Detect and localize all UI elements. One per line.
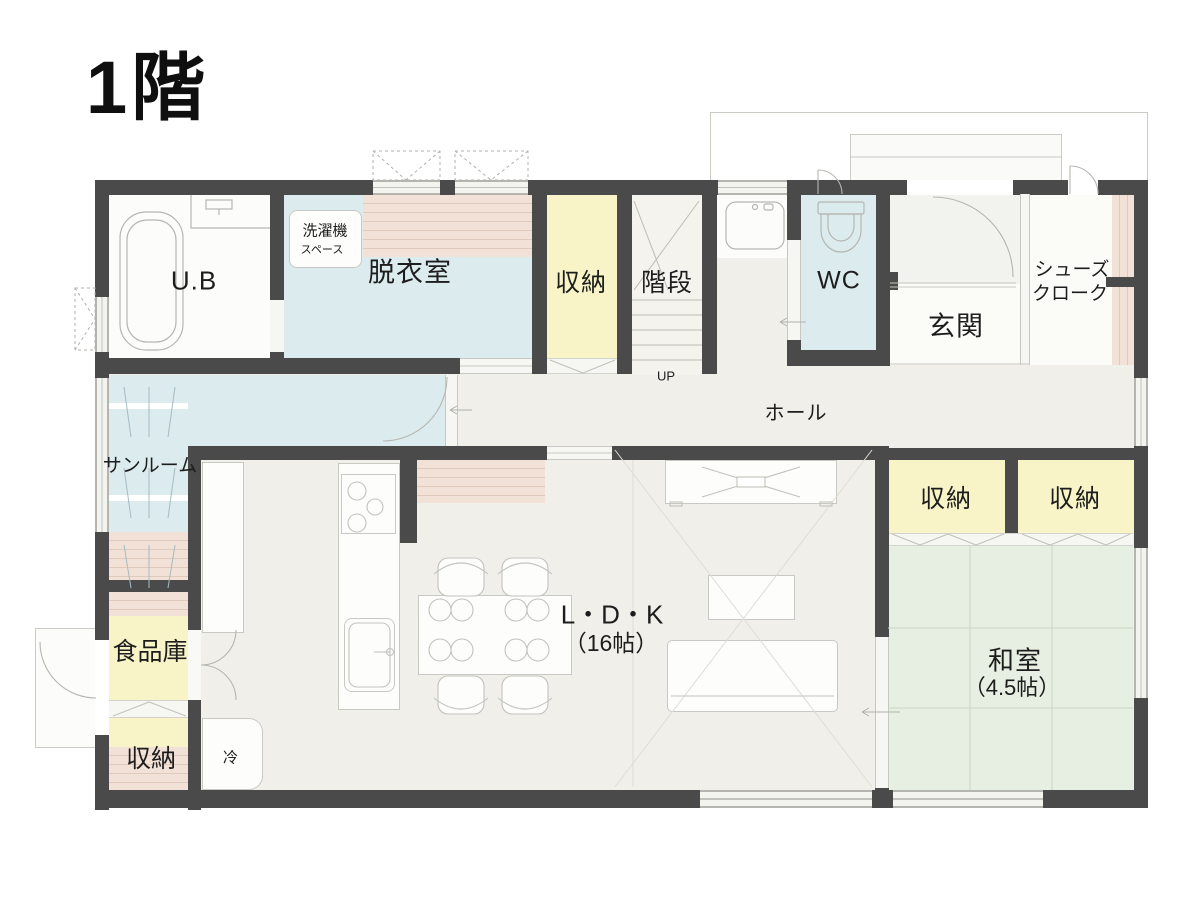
wall-segment: [1005, 460, 1018, 533]
label-unit-bath: U.B: [171, 266, 217, 297]
sunroom-shelf: [109, 532, 188, 580]
wall-segment: [1106, 277, 1134, 287]
label-shoe-closet-1: シューズ: [1034, 255, 1109, 282]
pantry-shelf-top: [109, 592, 188, 616]
shoe-closet-door-opening: [1068, 180, 1098, 195]
wall-segment: [532, 180, 547, 374]
wall-segment: [109, 358, 460, 374]
wall-segment: [95, 580, 201, 592]
label-storage-r2: 収納: [1049, 479, 1101, 515]
window: [95, 297, 109, 352]
ldk-washitsu-sliding-door: [875, 637, 889, 788]
tv-board: [665, 460, 837, 504]
label-storage-r1: 収納: [920, 479, 972, 515]
label-wc: WC: [817, 267, 861, 296]
window: [1134, 378, 1148, 446]
window: [455, 180, 528, 195]
wall-segment: [888, 272, 898, 290]
dining-counter-shelf: [417, 460, 545, 503]
label-dressing-room: 脱衣室: [368, 251, 452, 290]
kitchen-sink: [344, 618, 395, 692]
dressing-counter-shelf: [363, 195, 532, 257]
label-hall: ホール: [765, 397, 828, 426]
window: [373, 180, 440, 195]
dressing-door-opening: [460, 358, 532, 374]
kitchen-cupboard: [202, 462, 244, 633]
window: [718, 180, 787, 195]
entrance-porch-step: [850, 134, 1062, 182]
label-shoe-closet-2: クローク: [1032, 279, 1108, 306]
label-storage-top: 収納: [555, 263, 607, 299]
entrance-shoe-divider: [1020, 194, 1030, 365]
wall-segment: [188, 446, 877, 460]
window: [893, 790, 1043, 808]
sofa: [667, 640, 838, 712]
label-up: UP: [657, 369, 675, 384]
label-washer-space-2: スペース: [301, 241, 344, 257]
entrance-door-opening: [907, 180, 1013, 195]
label-japanese-room-2: （4.5帖）: [964, 670, 1061, 702]
label-washer-space-1: 洗濯機: [302, 220, 347, 241]
wc-door: [787, 240, 801, 340]
label-entrance: 玄関: [928, 305, 984, 344]
wall-segment: [790, 350, 890, 366]
dining-table: [418, 595, 572, 675]
stove: [341, 474, 396, 534]
page-title: 1階: [86, 28, 209, 135]
storage-bl-sliding-door: [109, 700, 188, 718]
wall-segment: [188, 592, 201, 810]
label-stairs: 階段: [641, 263, 693, 299]
wall-segment: [400, 446, 417, 543]
washbasin-niche: [717, 194, 787, 258]
wall-segment: [617, 180, 632, 374]
window: [700, 790, 872, 808]
label-fridge: 冷: [223, 747, 239, 768]
closet-sliding-doors: [888, 533, 1133, 546]
wall-segment: [877, 448, 1148, 460]
window: [1134, 548, 1148, 698]
label-pantry: 食品庫: [112, 632, 187, 668]
wall-segment: [702, 180, 717, 374]
coffee-table: [708, 575, 795, 620]
wall-segment: [1134, 180, 1148, 808]
wall-segment: [875, 446, 889, 637]
corridor-door-frame: [445, 375, 458, 446]
sunroom-pole-2: [109, 495, 188, 501]
bath-door-opening: [270, 300, 284, 352]
floor-plan-canvas: 1階: [0, 0, 1200, 900]
back-door-opening: [95, 640, 109, 735]
entrance-tile: [890, 194, 1020, 284]
sunroom-pole-1: [109, 403, 188, 409]
label-ldk-2: （16帖）: [564, 624, 659, 658]
back-porch-outline: [35, 628, 96, 748]
pantry-door-opening: [188, 630, 201, 700]
hall-ldk-sliding-door: [547, 446, 612, 460]
label-storage-bl: 収納: [126, 739, 176, 775]
storage-top-folding-door: [547, 358, 617, 374]
label-sunroom: サンルーム: [103, 451, 197, 478]
wall-segment: [875, 786, 889, 808]
